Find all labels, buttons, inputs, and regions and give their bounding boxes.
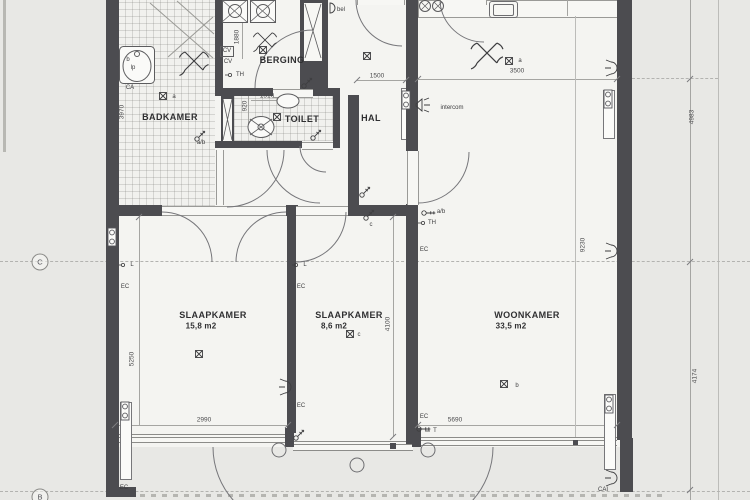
dimension-label: 9230	[580, 238, 587, 252]
annotation-intercom: intercom	[440, 105, 463, 111]
annotation-l: L	[130, 262, 133, 268]
plan-graphic	[506, 58, 513, 65]
annotation-ec: EC	[420, 414, 428, 420]
dimension-label: 4100	[385, 317, 392, 331]
annotation-ec: EC	[121, 284, 129, 290]
plan-graphic	[501, 381, 508, 388]
annotation-ec: EC	[297, 284, 305, 290]
annotation-bel: bel	[337, 7, 345, 13]
double-socket-icon	[108, 90, 613, 420]
plan-graphic	[120, 47, 155, 84]
plan-graphic	[260, 47, 267, 54]
plan-graphic	[605, 395, 613, 413]
dimension-label: 5690	[448, 417, 462, 424]
plan-graphic	[402, 91, 410, 109]
dimension-label: 4983	[689, 110, 696, 124]
annotation-ca: CA	[126, 85, 134, 91]
balcony-door-arc-right	[413, 447, 493, 500]
plan-graphic	[150, 1, 214, 58]
annotation-ec: EC	[297, 403, 305, 409]
annotation-b: b	[515, 383, 518, 389]
plan-graphic	[294, 263, 297, 266]
annotation-ab: a/b	[197, 140, 205, 146]
lamp-point-markers	[119, 263, 430, 431]
plan-graphic	[228, 73, 231, 76]
plan-graphic	[364, 187, 370, 194]
plan-graphic	[421, 2, 442, 10]
wc-toilet	[248, 117, 274, 138]
plan-graphic	[604, 90, 612, 108]
plan-graphic	[302, 78, 312, 88]
plan-graphic	[368, 210, 374, 217]
annotation-l: L	[303, 262, 306, 268]
bedroom1-door-arc-a	[162, 212, 212, 262]
room-area-woonkamer: 33,5 m2	[496, 322, 527, 331]
plan-graphic	[605, 470, 617, 486]
kitchen-door-arc	[440, 2, 484, 42]
plan-graphic	[121, 402, 129, 420]
plan-graphic	[360, 193, 364, 197]
annotation-lp: lp	[131, 65, 136, 71]
annotation-t: T	[433, 428, 437, 434]
plan-graphic	[421, 424, 430, 433]
balcony-column	[272, 443, 286, 457]
plan-graphic	[311, 136, 315, 140]
plan-graphic	[279, 379, 291, 395]
plan-graphic	[315, 130, 321, 137]
plan-graphic	[298, 430, 304, 437]
plan-graphic	[160, 93, 167, 100]
plan-graphic	[108, 228, 116, 246]
plan-graphic	[421, 210, 427, 216]
plan-graphic	[605, 243, 617, 259]
plan-graphic	[180, 52, 209, 76]
plan-graphic	[605, 395, 613, 413]
bathtub	[120, 47, 155, 84]
dimension-label: 1500	[370, 73, 384, 80]
plan-graphic	[347, 331, 354, 338]
plan-graphic	[605, 470, 617, 486]
plan-graphic	[306, 78, 312, 85]
dimension-label: 4174	[692, 369, 699, 383]
annotation-ab: a/b	[437, 209, 445, 215]
entry-door-arc	[356, 0, 402, 46]
annotation-a: a	[172, 94, 175, 100]
bedroom1-door-arc-b	[236, 212, 286, 262]
toilet-door-arc	[300, 146, 326, 172]
annotation-c: c	[358, 332, 361, 338]
room-label-badkamer: BADKAMER	[142, 112, 198, 122]
plan-graphic	[121, 263, 124, 266]
annotation-a: a	[518, 58, 521, 64]
plan-graphic	[294, 436, 298, 440]
plan-graphic	[421, 221, 424, 224]
vestibule-door-arc-right	[267, 150, 320, 203]
balcony-column	[421, 443, 435, 457]
plan-graphic	[605, 60, 617, 76]
badkamer-diagonal-lines	[150, 1, 214, 58]
annotation-ec: EC	[420, 247, 428, 253]
plan-graphic	[121, 402, 129, 420]
plan-graphic	[416, 98, 430, 112]
plan-graphic	[279, 379, 291, 395]
grid-marker-c: C	[32, 254, 49, 271]
plan-graphic	[364, 210, 374, 220]
plan-graphic	[294, 430, 304, 440]
dimension-label: 1880	[234, 30, 241, 44]
dimension-label: 3970	[119, 105, 126, 119]
room-label-slaapkamer-2: SLAAPKAMER	[315, 310, 383, 320]
room-label-berging: BERGING	[260, 55, 305, 65]
plan-graphic	[471, 43, 503, 69]
balcony-columns	[272, 443, 435, 472]
plan-graphic	[302, 84, 306, 88]
toilet-washbasin	[277, 94, 299, 108]
room-label-toilet: TOILET	[285, 114, 319, 124]
plan-graphic	[360, 187, 370, 197]
dimension-label: 5250	[129, 352, 136, 366]
dimension-label: 2990	[197, 417, 211, 424]
intercom-icon	[416, 98, 430, 112]
plan-graphic	[330, 3, 335, 13]
bedroom2-door-arc	[296, 212, 346, 262]
doorbell-icon	[330, 3, 335, 13]
room-area-slaapkamer-2: 8,6 m2	[321, 322, 347, 331]
plan-graphic	[108, 228, 116, 246]
room-label-woonkamer: WOONKAMER	[494, 310, 560, 320]
floor-plan-page: BADKAMERBERGINGTOILETHALSLAAPKAMER15,8 m…	[0, 0, 750, 500]
dimension-label: 920	[242, 101, 249, 112]
balcony-column	[350, 458, 364, 472]
annotation-th: TH	[236, 72, 244, 78]
switch-icon	[195, 78, 436, 440]
annotation-th: TH	[428, 220, 436, 226]
livingroom-door-arc	[418, 152, 469, 203]
plan-graphic	[605, 60, 617, 76]
plan-graphic	[199, 131, 205, 138]
plan-graphic	[471, 43, 503, 69]
plan-graphic	[180, 52, 209, 76]
washing-machines	[222, 0, 276, 23]
annotation-b: b	[126, 57, 129, 63]
grid-marker-b: B	[32, 489, 49, 500]
ceiling-light-icon	[180, 33, 503, 76]
plan-graphic	[196, 351, 203, 358]
plan-graphic	[364, 216, 368, 220]
door-arcs	[162, 0, 493, 500]
plan-graphic	[421, 206, 436, 221]
annotation-c: c	[370, 222, 373, 228]
room-area-slaapkamer-1: 15,8 m2	[186, 322, 217, 331]
annotation-cai: CAI	[598, 487, 608, 493]
socket-icon	[160, 47, 513, 388]
balcony-door-arc-left	[213, 447, 293, 500]
plan-graphic	[426, 208, 435, 217]
annotation-cv: CV	[223, 48, 231, 54]
annotation-cv: CV	[224, 59, 232, 65]
plan-graphic	[604, 90, 612, 108]
annotation-ec: EC	[120, 485, 128, 491]
plan-graphic	[274, 114, 281, 121]
plan-graphic	[364, 53, 371, 60]
room-label-hal: HAL	[361, 113, 381, 123]
plan-graphic	[605, 243, 617, 259]
plan-graphic	[416, 422, 431, 437]
dimension-label: 3500	[510, 68, 524, 75]
dimension-label: 1510	[260, 93, 274, 100]
plan-graphic	[402, 91, 410, 109]
room-label-slaapkamer-1: SLAAPKAMER	[179, 310, 247, 320]
plan-graphic	[311, 130, 321, 140]
thermostat-markers	[225, 73, 425, 224]
